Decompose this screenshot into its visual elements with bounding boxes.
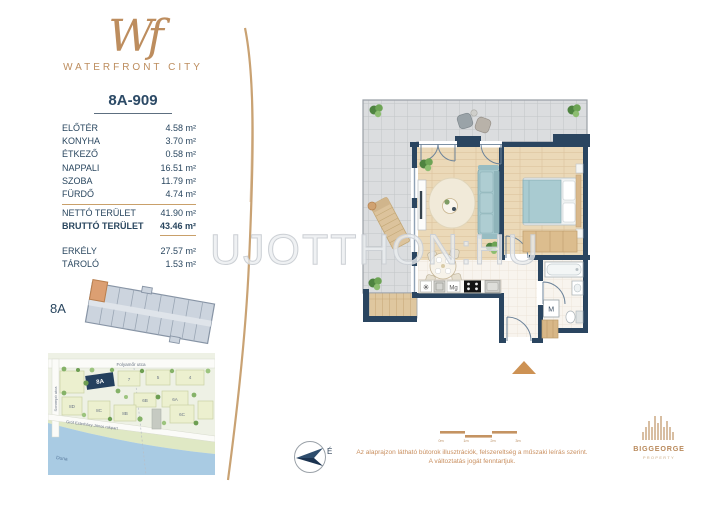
- svg-text:3m: 3m: [515, 439, 520, 443]
- svg-text:8C: 8C: [96, 408, 103, 413]
- kitchen-counter: ✳ Mg: [419, 280, 501, 293]
- svg-text:6C: 6C: [179, 412, 186, 417]
- svg-text:6A: 6A: [172, 397, 179, 402]
- floor-plan: ✳ Mg: [355, 90, 600, 386]
- closet: [542, 320, 558, 338]
- brochure-page: Wf WATERFRONT CITY 8A-909 ELŐTÉR4.58 m² …: [0, 0, 720, 510]
- brand-logo: Wf WATERFRONT CITY: [60, 14, 206, 73]
- entrance-arrow-icon: [512, 361, 536, 374]
- svg-text:6B: 6B: [142, 398, 148, 403]
- street-label: Sorompó utca: [53, 386, 58, 412]
- unit-id: 8A-909: [60, 92, 206, 114]
- svg-text:2m: 2m: [490, 439, 495, 443]
- oven-icon: [434, 281, 445, 292]
- compass: É: [290, 438, 342, 478]
- developer-subtitle: PROPERTY: [643, 456, 675, 460]
- table-row: FÜRDŐ4.74 m²: [62, 188, 196, 201]
- washing-machine: M: [544, 300, 560, 317]
- street-label: Folyamőr utca: [116, 362, 146, 367]
- brand-monogram-icon: Wf: [60, 14, 206, 60]
- net-area-row: NETTÓ TERÜLET41.90 m²: [62, 207, 196, 220]
- sink-icon: [485, 281, 500, 293]
- balcony: [363, 289, 417, 322]
- area-table: ELŐTÉR4.58 m² KONYHA3.70 m² ÉTKEZŐ0.58 m…: [62, 122, 196, 271]
- building-label: 8A: [50, 301, 66, 316]
- svg-text:M: M: [548, 307, 554, 314]
- scale-bar: 0m 1m 2m 3m: [438, 426, 522, 444]
- divider: [62, 204, 196, 205]
- svg-text:8D: 8D: [69, 404, 76, 409]
- svg-text:8A: 8A: [96, 379, 105, 386]
- svg-text:4: 4: [189, 375, 192, 380]
- highlighted-unit: [89, 280, 107, 302]
- table-row: ÉTKEZŐ0.58 m²: [62, 148, 196, 161]
- gross-area-row: BRUTTÓ TERÜLET43.46 m²: [62, 220, 196, 235]
- building-footprint: [66, 276, 226, 352]
- towers-icon: [643, 416, 673, 440]
- disclaimer: Az alaprajzon látható bútorok illusztrác…: [342, 448, 602, 466]
- svg-text:7: 7: [128, 377, 131, 382]
- hall-floor: [504, 260, 538, 338]
- location-map: 8A Folyamőr utca Sorompó utca Gróf Ester…: [48, 353, 215, 475]
- table-row: ERKÉLY27.57 m²: [62, 245, 196, 258]
- table-row: SZOBA11.79 m²: [62, 175, 196, 188]
- developer-logo: BIGGEORGE PROPERTY: [625, 406, 695, 468]
- hob-icon: [464, 281, 481, 293]
- developer-name: BIGGEORGE: [633, 444, 685, 453]
- svg-text:1m: 1m: [463, 439, 468, 443]
- table-row: NAPPALI16.51 m²: [62, 162, 196, 175]
- table-row: ELŐTÉR4.58 m²: [62, 122, 196, 135]
- svg-text:5: 5: [157, 375, 160, 380]
- fridge-icon: ✳: [423, 283, 430, 292]
- brand-name: WATERFRONT CITY: [60, 62, 206, 73]
- table-row: KONYHA3.70 m²: [62, 135, 196, 148]
- decorative-ribbon: [218, 22, 268, 488]
- svg-text:0m: 0m: [438, 439, 443, 443]
- north-label: É: [327, 447, 332, 456]
- microwave-icon: Mg: [449, 285, 457, 291]
- planter-pot: [368, 202, 376, 210]
- svg-text:8B: 8B: [122, 411, 128, 416]
- table-row: TÁROLÓ1.53 m²: [62, 258, 196, 271]
